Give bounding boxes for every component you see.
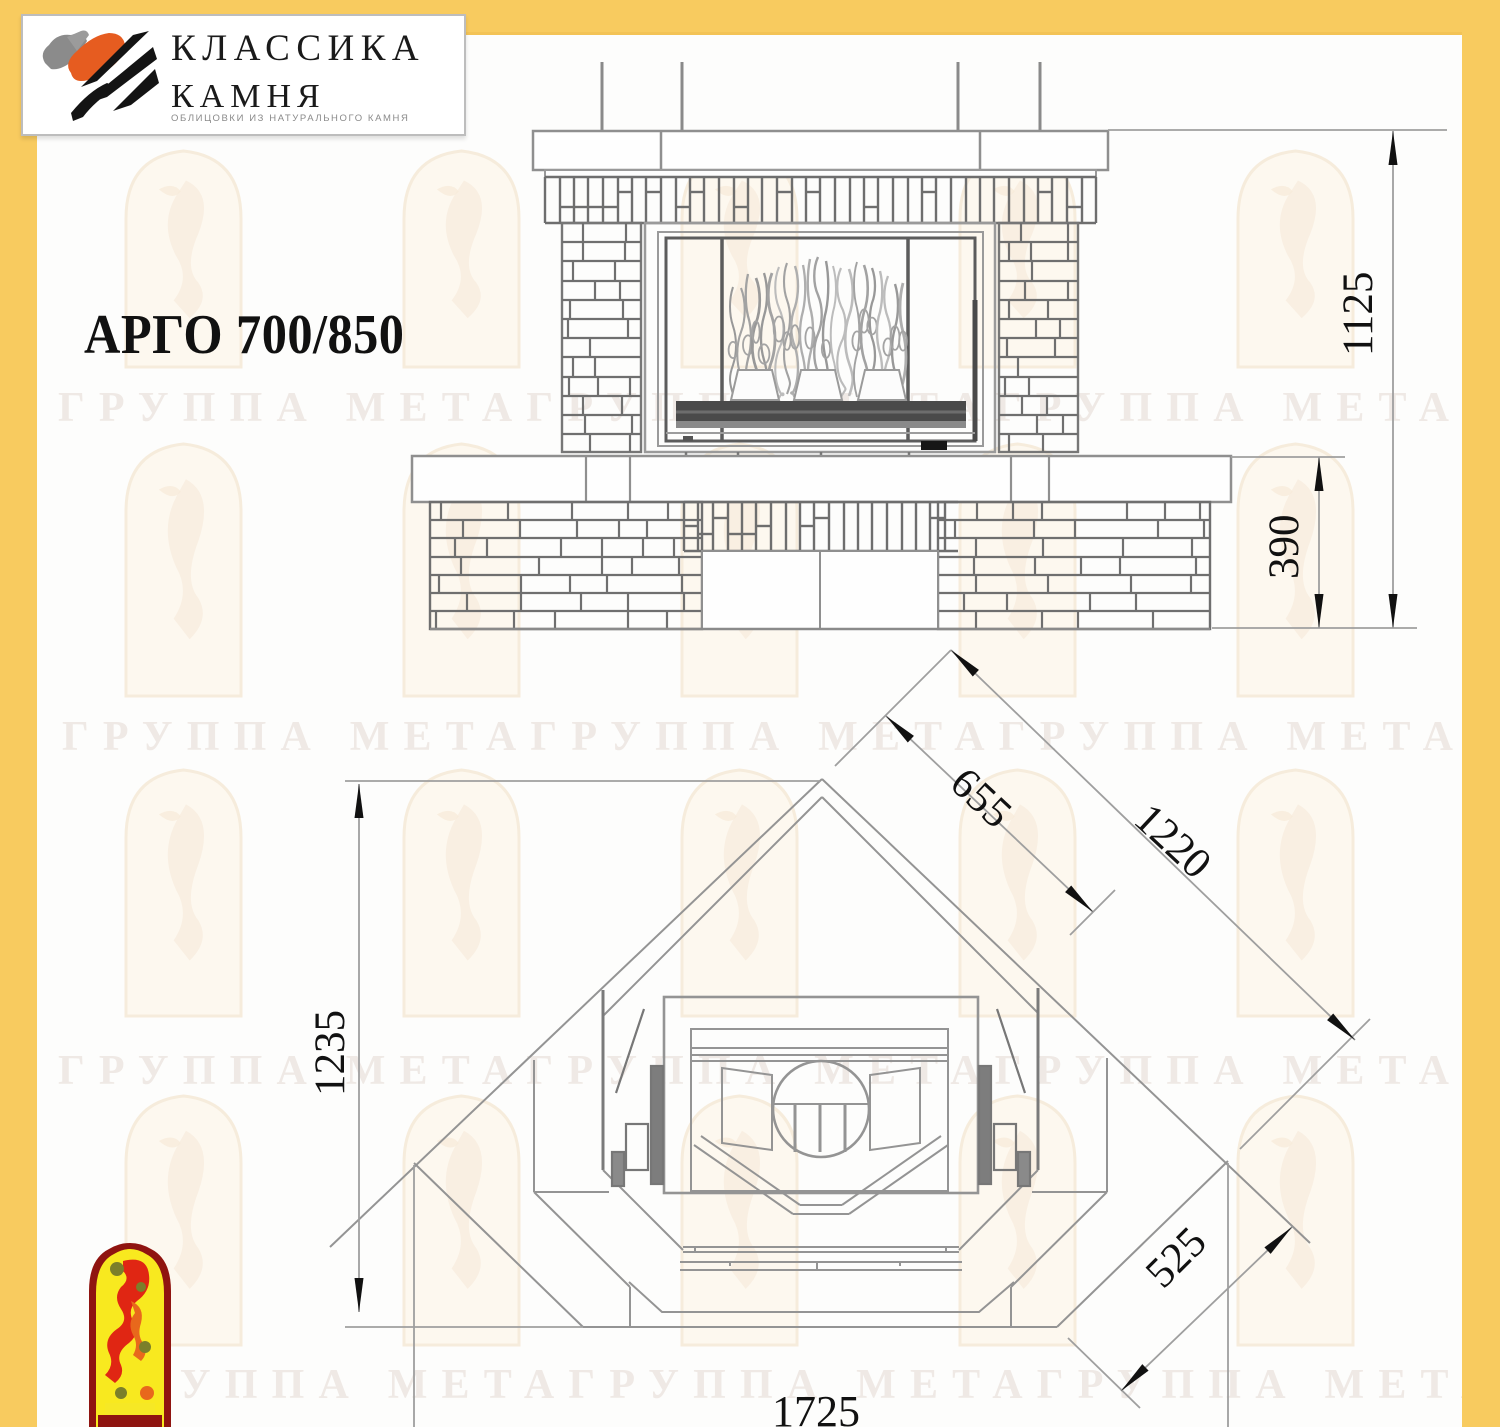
svg-text:1125: 1125 [1335, 272, 1382, 356]
svg-text:1725: 1725 [772, 1387, 860, 1427]
svg-text:ГРУППА МЕТАГРУППА МЕТАГРУППА М: ГРУППА МЕТАГРУППА МЕТАГРУППА МЕТА [62, 714, 1457, 760]
svg-text:1220: 1220 [1125, 795, 1220, 888]
svg-text:1235: 1235 [307, 1010, 354, 1096]
svg-text:525: 525 [1137, 1218, 1216, 1297]
svg-text:390: 390 [1261, 515, 1308, 580]
